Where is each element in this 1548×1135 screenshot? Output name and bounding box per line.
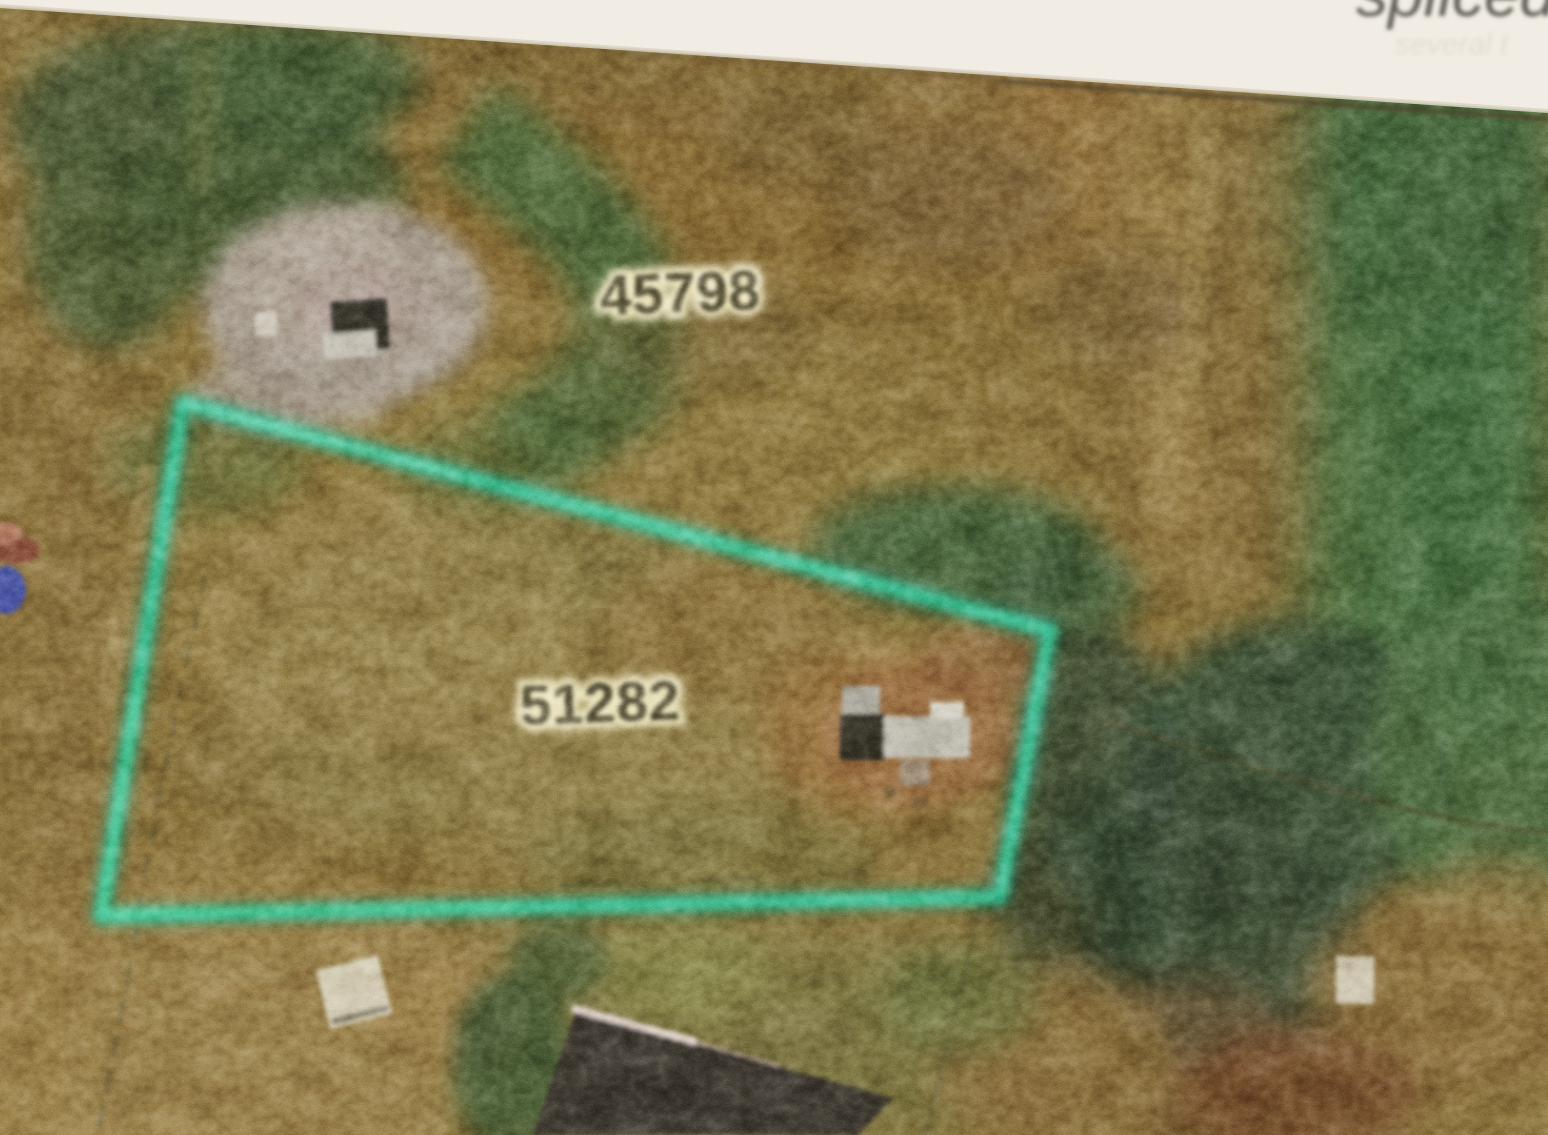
svg-text:several t: several t bbox=[1395, 28, 1510, 61]
svg-text:spliced: spliced bbox=[1356, 0, 1548, 30]
